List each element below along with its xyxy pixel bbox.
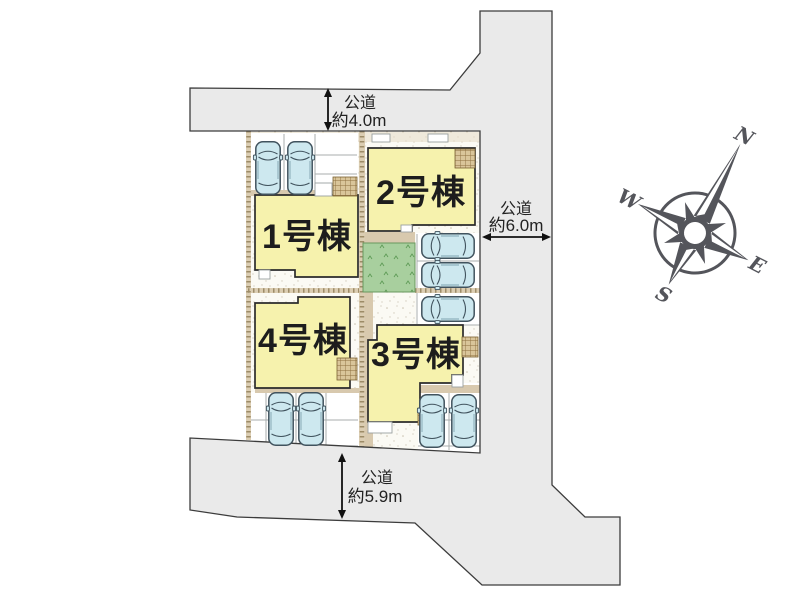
building-4-label: 4号棟 [258, 322, 348, 360]
site-plan-svg: 1号棟 2号棟 3号棟 4号棟 公道 約4.0m 公道 約6.0m 公道 約5.… [0, 0, 800, 599]
car [285, 142, 314, 194]
car [422, 294, 474, 323]
porch-lot1 [333, 177, 357, 196]
car [422, 260, 474, 289]
road-width-right: 約6.0m [489, 216, 544, 235]
building-3-label: 3号棟 [371, 336, 461, 374]
car [417, 395, 446, 447]
car [296, 393, 325, 445]
road-type-bottom: 公道 [361, 469, 393, 487]
road-width-top: 約4.0m [332, 111, 387, 130]
site-plan-page: 1号棟 2号棟 3号棟 4号棟 公道 約4.0m 公道 約6.0m 公道 約5.… [0, 0, 800, 599]
car [266, 393, 295, 445]
building-2-label: 2号棟 [376, 174, 466, 212]
car [422, 231, 474, 260]
porch-lot3 [462, 337, 478, 357]
path-strip-lot3-parking [418, 385, 480, 393]
building-1-label: 1号棟 [262, 218, 352, 256]
car [449, 395, 478, 447]
garden [363, 243, 415, 292]
porch-lot2 [455, 149, 475, 168]
road-width-bottom: 約5.9m [348, 487, 403, 506]
road-type-top: 公道 [344, 94, 376, 112]
car [253, 142, 282, 194]
porch-lot4 [337, 358, 357, 380]
